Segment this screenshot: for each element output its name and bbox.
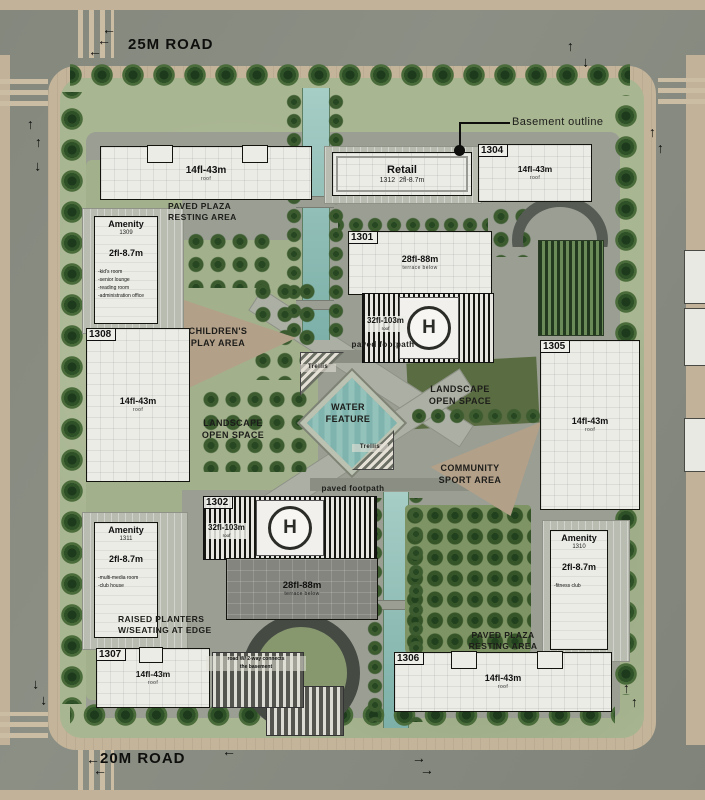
roof-label: roof	[208, 533, 245, 539]
building-height-label: 14fl-43m	[572, 417, 609, 427]
tower-height-label: 32fl-103m roof	[206, 523, 247, 539]
building-1307: 1307 14fl-43m roof	[96, 648, 210, 708]
amenity-note: -kid's room	[98, 268, 144, 276]
helipad-panel: H	[256, 500, 324, 556]
traffic-arrow-icon: ←	[630, 696, 644, 710]
amenity-title: Amenity	[108, 220, 144, 230]
landscape-label-west: LANDSCAPEOPEN SPACE	[185, 418, 281, 441]
building-northwest: 14fl-43m roof	[100, 146, 312, 200]
traffic-arrow-icon: ←	[34, 136, 48, 150]
building-1305: 1305 14fl-43m roof	[540, 340, 640, 510]
neighbour-building	[684, 418, 705, 472]
raised-planters-label: RAISED PLANTERSW/SEATING AT EDGE	[118, 614, 248, 636]
amenity-note: -club house	[98, 582, 138, 590]
amenity-note: -multi-media room	[98, 574, 138, 582]
helipad-icon: H	[268, 506, 312, 550]
road-label-top: 25M ROAD	[128, 36, 214, 53]
neighbour-building	[684, 308, 705, 366]
building-amenity-1309: Amenity 1309 2fl-8.7m -kid's room -senio…	[94, 216, 158, 324]
roof-label: roof	[585, 427, 595, 433]
amenity-id: 1309	[119, 230, 132, 236]
building-retail: Retail 1312 2fl-8.7m	[332, 152, 472, 196]
traffic-arrow-icon: ←	[656, 142, 670, 156]
amenity-height: 2fl-8.7m	[109, 554, 143, 564]
building-1306: 1306 14fl-43m roof	[394, 652, 612, 712]
sidewalk-left-far	[0, 55, 10, 745]
basement-outline-marker	[454, 145, 465, 156]
traffic-arrow-icon: ←	[576, 56, 590, 70]
retail-id: 1312	[380, 177, 396, 184]
crosswalk	[0, 78, 48, 106]
roof-label: roof	[498, 684, 508, 690]
road-label-bottom: 20M ROAD	[100, 750, 186, 767]
building-1302-tower: 1302 H 32fl-103m roof	[203, 496, 377, 560]
building-1304: 1304 14fl-43m roof	[478, 144, 592, 202]
amenity-note: -senior lounge	[98, 276, 144, 284]
footpath-label-south: paved footpath	[308, 484, 398, 494]
retail-label: Retail	[387, 164, 417, 176]
building-height-label: 14fl-43m	[518, 165, 553, 174]
traffic-arrow-icon: ←	[93, 763, 107, 777]
terrace-label: terrace below	[402, 265, 437, 271]
amenity-note: -administration office	[98, 292, 144, 300]
amenity-id: 1311	[120, 536, 133, 542]
traffic-arrow-icon: ←	[622, 682, 636, 696]
building-height-label: 28fl-88m	[402, 255, 439, 265]
trellis-label: Trellis	[300, 364, 336, 372]
crosswalk	[0, 712, 48, 738]
water-feature-label: WATERFEATURE	[316, 402, 380, 425]
amenity-note: -fitness club	[554, 582, 581, 590]
building-id: 1302	[204, 497, 233, 509]
building-amenity-1310: Amenity 1310 2fl-8.7m -fitness club	[550, 530, 608, 650]
traffic-arrow-icon: ←	[28, 160, 42, 174]
roof-label: roof	[148, 680, 158, 686]
traffic-arrow-icon: ←	[34, 694, 48, 708]
traffic-arrow-icon: ←	[222, 744, 236, 758]
sidewalk-right-far	[686, 55, 705, 745]
building-height-label: 14fl-43m	[485, 674, 522, 684]
amenity-id: 1310	[572, 544, 585, 550]
sidewalk-top-far	[0, 0, 705, 10]
site-plan-canvas: 14fl-43m roof Retail 1312 2fl-8.7m 1304 …	[0, 0, 705, 800]
roof-label: roof	[201, 176, 211, 182]
building-height-label: 28fl-88m	[283, 581, 322, 591]
ramp-note: road W/ 2-way connects the basement	[206, 656, 306, 671]
amenity-height: 2fl-8.7m	[109, 248, 143, 258]
roof-label: roof	[367, 326, 404, 332]
trellis-label: Trellis	[352, 444, 388, 452]
traffic-arrow-icon: ←	[420, 768, 434, 782]
community-sport-label: COMMUNITYSPORT AREA	[418, 463, 522, 486]
traffic-arrow-icon: ←	[648, 126, 662, 140]
neighbour-building	[684, 250, 705, 304]
building-1302-slab: 28fl-88m terrace below	[226, 558, 378, 620]
building-height-label: 14fl-43m	[136, 670, 171, 679]
building-height-label: 14fl-43m	[120, 397, 157, 407]
amenity-note: -reading room	[98, 284, 144, 292]
landscape-label-east: LANDSCAPEOPEN SPACE	[408, 384, 512, 407]
building-height-label: 14fl-43m	[186, 165, 227, 176]
amenity-title: Amenity	[561, 534, 597, 544]
terrace-label: terrace below	[284, 591, 319, 597]
basement-outline-label: Basement outline	[512, 115, 632, 129]
traffic-arrow-icon: ←	[26, 118, 40, 132]
amenity-title: Amenity	[108, 526, 144, 536]
building-1301-slab: 1301 28fl-88m terrace below	[348, 231, 492, 295]
traffic-arrow-icon: ←	[566, 40, 580, 54]
paved-plaza-label-se: PAVED PLAZARESTING AREA	[448, 630, 558, 652]
childrens-play-label: CHILDREN'SPLAY AREA	[170, 326, 266, 349]
sidewalk-bottom-far	[0, 790, 705, 800]
roof-label: roof	[133, 407, 143, 413]
roof-label: roof	[530, 175, 540, 181]
tree-row-landscape	[412, 404, 540, 428]
green-trellis	[538, 240, 604, 336]
building-1308: 1308 14fl-43m roof	[86, 328, 190, 482]
traffic-arrow-icon: ←	[88, 44, 102, 58]
retail-height: 2fl-8.7m	[399, 177, 424, 184]
amenity-height: 2fl-8.7m	[562, 562, 596, 572]
crosswalk	[658, 78, 705, 104]
tower-height-label: 32fl-103m roof	[365, 316, 406, 332]
footpath-label-north: paved footpath	[338, 340, 428, 350]
tree-row-north	[70, 60, 630, 90]
leader-line	[460, 122, 510, 124]
paved-plaza-label-nw: PAVED PLAZARESTING AREA	[168, 201, 278, 223]
building-1301-tower: H 32fl-103m roof	[362, 293, 494, 363]
traffic-arrow-icon: ←	[26, 678, 40, 692]
